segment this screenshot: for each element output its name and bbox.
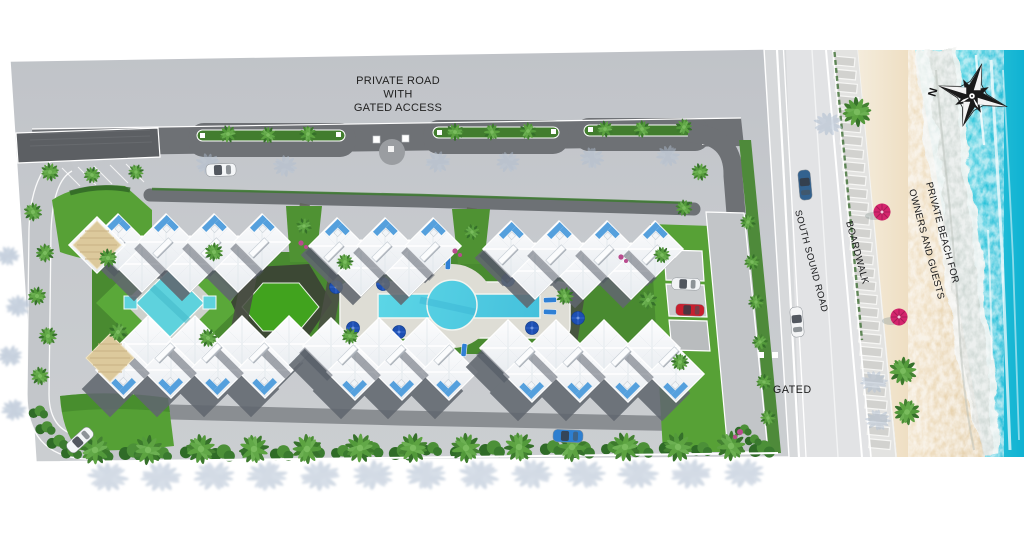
svg-text:GATED: GATED bbox=[773, 384, 812, 396]
